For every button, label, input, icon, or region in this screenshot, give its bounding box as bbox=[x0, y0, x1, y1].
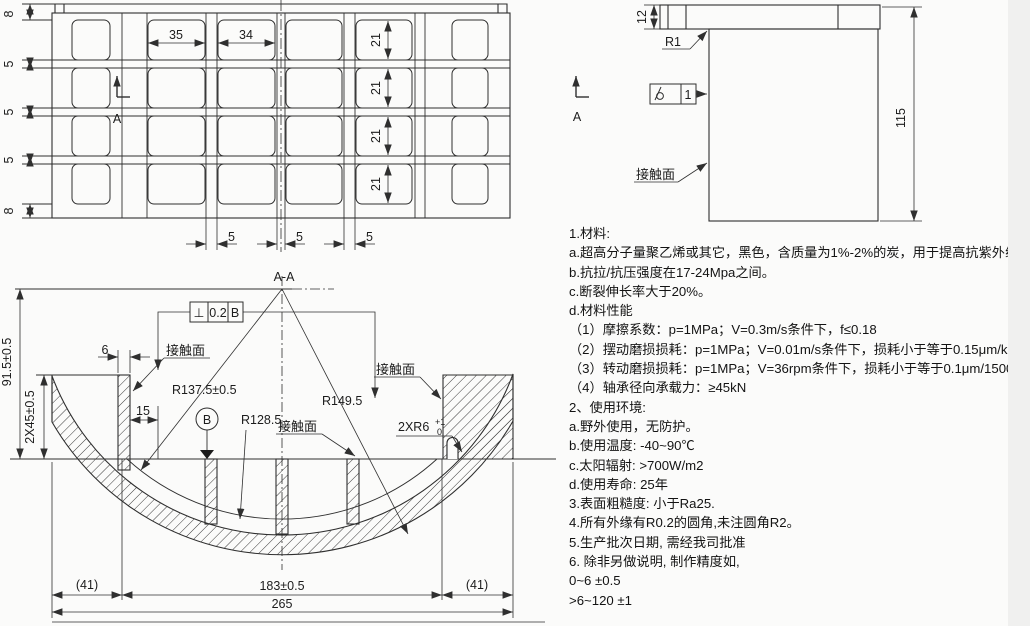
gdt-symbol: ⊥ bbox=[194, 306, 205, 320]
radius-inner-label: R137.5±0.5 bbox=[172, 383, 237, 397]
side-body bbox=[709, 29, 878, 221]
note-line: d.材料性能 bbox=[569, 301, 1024, 320]
plan-view: 35 34 21 21 21 21 8 5 5 5 8 5 5 5 A bbox=[2, 0, 510, 252]
groove-tol-lower: 0 bbox=[437, 427, 442, 437]
note-line: 4.所有外缘有R0.2的圆角,未注圆角R2。 bbox=[569, 513, 1024, 532]
plan-rails bbox=[22, 4, 510, 218]
dim-overall-height: 91.5±0.5 bbox=[0, 338, 14, 387]
contact-label-middle: 接触面 bbox=[278, 419, 317, 434]
section-view: A-A ⊥ 0.2 B B 接触面 接触面 接触面 R137.5±0.5 R12… bbox=[0, 270, 556, 622]
groove-tol-upper: +1 bbox=[435, 417, 445, 427]
gdt-tolerance: 0.2 bbox=[209, 306, 226, 320]
plan-dim-bottom-5a: 5 bbox=[228, 230, 235, 244]
contact-label-left: 接触面 bbox=[166, 343, 205, 358]
side-dim-115: 115 bbox=[894, 108, 908, 128]
radius-pad-label: R128.5 bbox=[241, 413, 281, 427]
side-dimensions bbox=[644, 5, 922, 221]
plan-dim-34: 34 bbox=[239, 28, 253, 42]
surface-finish-grade: 1 bbox=[685, 88, 692, 102]
note-line: a.野外使用，无防护。 bbox=[569, 417, 1024, 436]
note-line: b.使用温度: -40~90℃ bbox=[569, 436, 1024, 455]
plan-dim-21-r2: 21 bbox=[369, 81, 383, 95]
note-line: d.使用寿命: 25年 bbox=[569, 475, 1024, 494]
engineering-drawing-canvas: 35 34 21 21 21 21 8 5 5 5 8 5 5 5 A bbox=[0, 0, 1030, 626]
dim-41-right: (41) bbox=[466, 578, 488, 592]
side-section-arrow-label: A bbox=[573, 110, 582, 124]
groove-slot bbox=[447, 438, 458, 460]
technical-notes: 1.材料: a.超高分子量聚乙烯或其它，黑色，含质量为1%-2%的炭，用于提高抗… bbox=[569, 224, 1024, 610]
note-line: >6~120 ±1 bbox=[569, 591, 1024, 610]
radius-outer-label: R149.5 bbox=[322, 394, 362, 408]
plan-pocket-grid bbox=[72, 20, 488, 204]
note-line: 5.生产批次日期, 需经我司批准 bbox=[569, 533, 1024, 552]
note-line: （2）摆动磨损损耗：p=1MPa；V=0.01m/s条件下，损耗小于等于0.15… bbox=[569, 340, 1024, 359]
plan-dim-35: 35 bbox=[169, 28, 183, 42]
dim-41-left: (41) bbox=[76, 578, 98, 592]
note-line: （4）轴承径向承载力：≥45kN bbox=[569, 378, 1024, 397]
note-line: （1）摩擦系数：p=1MPa；V=0.3m/s条件下，f≤0.18 bbox=[569, 320, 1024, 339]
dim-rib-width: 6 bbox=[102, 343, 109, 357]
plan-dim-21-r1: 21 bbox=[369, 33, 383, 47]
gdt-datum: B bbox=[231, 306, 239, 320]
note-line: c.断裂伸长率大于20%。 bbox=[569, 282, 1024, 301]
rib-1 bbox=[205, 459, 217, 524]
note-line: （3）转动磨损损耗：p=1MPa；V=36rpm条件下，损耗小于等于0.1μm/… bbox=[569, 359, 1024, 378]
rib-3 bbox=[347, 459, 359, 524]
side-dim-12: 12 bbox=[635, 10, 649, 24]
side-section-arrow bbox=[576, 76, 589, 97]
note-line: 2、使用环境: bbox=[569, 398, 1024, 417]
plan-dim-bottom-5c: 5 bbox=[366, 230, 373, 244]
plan-dim-21-r4: 21 bbox=[369, 177, 383, 191]
note-line: 0~6 ±0.5 bbox=[569, 571, 1024, 590]
side-contact-label: 接触面 bbox=[636, 167, 675, 182]
left-rib bbox=[118, 375, 130, 470]
note-line: 1.材料: bbox=[569, 224, 1024, 243]
plan-section-arrow-label: A bbox=[113, 112, 122, 126]
dim-pocket-width: 15 bbox=[136, 404, 150, 418]
note-line: 6. 除非另做说明, 制作精度如, bbox=[569, 552, 1024, 571]
section-title: A-A bbox=[274, 270, 296, 284]
dim-flange-height: 2X45±0.5 bbox=[23, 390, 37, 443]
note-line: b.抗拉/抗压强度在17-24Mpa之间。 bbox=[569, 263, 1024, 282]
radius-leaders bbox=[141, 289, 408, 534]
plan-dim-left-5c: 5 bbox=[2, 156, 16, 163]
plan-dim-left-8a: 8 bbox=[2, 10, 16, 17]
side-view: 12 R1 1 接触面 115 A bbox=[573, 5, 922, 221]
datum-b-label: B bbox=[203, 413, 211, 427]
dim-265: 265 bbox=[272, 597, 293, 611]
plan-dim-21-r3: 21 bbox=[369, 129, 383, 143]
rib-2 bbox=[276, 459, 288, 534]
side-r1-label: R1 bbox=[665, 35, 681, 49]
plan-dim-left-8b: 8 bbox=[2, 207, 16, 214]
plan-dim-left-5b: 5 bbox=[2, 108, 16, 115]
side-flange bbox=[660, 5, 880, 29]
note-line: 3.表面粗糙度: 小于Ra25. bbox=[569, 494, 1024, 513]
groove-radius-label: 2XR6 bbox=[398, 420, 429, 434]
plan-dimensions bbox=[30, 4, 388, 250]
contact-label-right: 接触面 bbox=[376, 362, 415, 377]
plan-dim-bottom-5b: 5 bbox=[296, 230, 303, 244]
screenshot-edge-band bbox=[1008, 0, 1030, 626]
plan-dim-left-5a: 5 bbox=[2, 60, 16, 67]
dim-183: 183±0.5 bbox=[259, 579, 304, 593]
note-line: c.太阳辐射: >700W/m2 bbox=[569, 456, 1024, 475]
note-line: a.超高分子量聚乙烯或其它，黑色，含质量为1%-2%的炭，用于提高抗紫外线的能力… bbox=[569, 243, 1024, 262]
surface-finish-symbol bbox=[650, 84, 707, 104]
plan-section-arrow bbox=[117, 76, 130, 97]
